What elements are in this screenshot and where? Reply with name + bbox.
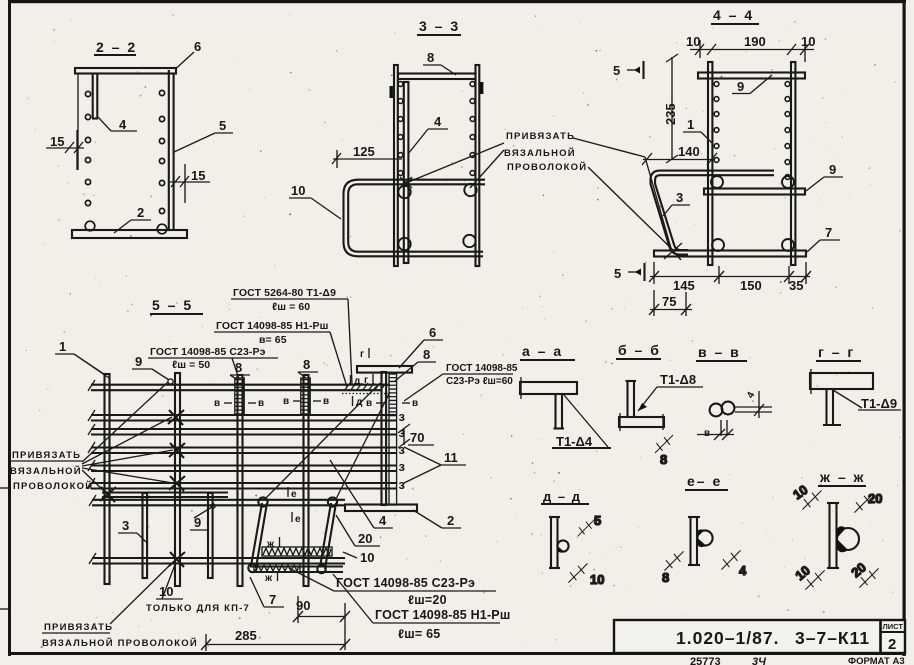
svg-text:ВЯЗАЛЬНОЙ: ВЯЗАЛЬНОЙ [10, 465, 82, 477]
svg-text:8: 8 [660, 452, 667, 467]
svg-text:7: 7 [269, 592, 276, 607]
svg-text:ж: ж [266, 539, 275, 550]
svg-text:150: 150 [740, 278, 762, 293]
svg-text:6: 6 [429, 325, 436, 340]
svg-text:25773: 25773 [690, 656, 721, 665]
svg-text:е: е [295, 514, 301, 525]
svg-text:10: 10 [801, 34, 815, 49]
svg-text:Т1-Δ4: Т1-Δ4 [556, 434, 593, 449]
svg-text:8: 8 [303, 357, 310, 372]
svg-text:125: 125 [353, 144, 375, 159]
svg-text:15: 15 [50, 134, 64, 149]
svg-text:ГОСТ 14098-85 С23-Рэ: ГОСТ 14098-85 С23-Рэ [336, 576, 475, 590]
svg-text:190: 190 [744, 34, 766, 49]
svg-text:1: 1 [59, 339, 66, 354]
svg-text:ГОСТ 5264-80 Т1-Δ9: ГОСТ 5264-80 Т1-Δ9 [233, 287, 336, 299]
svg-text:11: 11 [444, 450, 458, 465]
svg-text:ℓш= 65: ℓш= 65 [398, 627, 440, 641]
svg-text:285: 285 [235, 628, 257, 643]
svg-text:Т1-Δ8: Т1-Δ8 [660, 372, 696, 387]
svg-text:5: 5 [614, 266, 621, 281]
svg-text:8: 8 [235, 360, 242, 375]
svg-text:3Ч: 3Ч [752, 656, 766, 665]
svg-text:9: 9 [737, 79, 744, 94]
svg-text:ПРИВЯЗАТЬ: ПРИВЯЗАТЬ [12, 450, 81, 461]
svg-text:1: 1 [687, 117, 694, 132]
svg-text:4: 4 [434, 114, 442, 129]
svg-text:ПРИВЯЗАТЬ: ПРИВЯЗАТЬ [44, 622, 113, 633]
svg-text:ПРОВОЛОКОЙ: ПРОВОЛОКОЙ [13, 480, 93, 492]
svg-text:а – а: а – а [522, 343, 563, 359]
svg-text:г: г [360, 349, 364, 360]
svg-text:4: 4 [379, 513, 387, 528]
svg-text:6: 6 [194, 39, 201, 54]
svg-text:ТОЛЬКО ДЛЯ КП-7: ТОЛЬКО ДЛЯ КП-7 [146, 603, 250, 614]
svg-text:20: 20 [358, 531, 372, 546]
svg-text:з: з [399, 409, 406, 424]
svg-text:20: 20 [868, 491, 882, 506]
svg-text:в: в [366, 398, 372, 409]
svg-text:ЛИСТ: ЛИСТ [883, 622, 904, 631]
svg-text:10: 10 [360, 550, 374, 565]
svg-text:35: 35 [789, 278, 803, 293]
svg-text:7: 7 [825, 225, 832, 240]
svg-text:10: 10 [590, 572, 604, 587]
svg-text:ℓш = 60: ℓш = 60 [272, 301, 310, 313]
svg-text:в: в [214, 398, 220, 409]
svg-text:в: в [283, 396, 289, 407]
svg-text:235: 235 [663, 103, 678, 125]
svg-text:2 – 2: 2 – 2 [96, 39, 137, 55]
svg-text:ПРИВЯЗАТЬ: ПРИВЯЗАТЬ [506, 131, 575, 142]
svg-text:8: 8 [662, 570, 669, 585]
svg-text:ж: ж [264, 573, 273, 584]
svg-text:3–7–К11: 3–7–К11 [795, 628, 870, 648]
svg-text:д: д [354, 376, 361, 387]
svg-text:ВЯЗАЛЬНОЙ ПРОВОЛОКОЙ: ВЯЗАЛЬНОЙ ПРОВОЛОКОЙ [42, 637, 198, 649]
svg-text:в= 65: в= 65 [259, 334, 287, 346]
svg-text:е: е [291, 489, 297, 500]
svg-text:15: 15 [191, 168, 205, 183]
svg-text:ВЯЗАЛЬНОЙ: ВЯЗАЛЬНОЙ [504, 147, 576, 159]
svg-text:ФОРМАТ А3: ФОРМАТ А3 [848, 656, 905, 665]
svg-text:е– е: е– е [687, 473, 722, 489]
svg-text:д – д: д – д [543, 489, 581, 504]
svg-text:в: в [704, 428, 710, 439]
svg-text:9: 9 [829, 162, 836, 177]
svg-text:С23-Рэ ℓш=60: С23-Рэ ℓш=60 [446, 376, 513, 387]
svg-text:1.020–1/87.: 1.020–1/87. [676, 628, 779, 648]
svg-text:в: в [323, 396, 329, 407]
svg-text:140: 140 [678, 144, 700, 159]
svg-text:г: г [364, 375, 368, 386]
svg-text:в – в: в – в [698, 344, 741, 360]
svg-text:3: 3 [122, 518, 129, 533]
svg-text:в: в [412, 398, 418, 409]
svg-text:8: 8 [427, 50, 434, 65]
svg-text:2: 2 [447, 513, 454, 528]
svg-text:8: 8 [423, 347, 430, 362]
svg-text:г – г: г – г [818, 344, 855, 360]
svg-text:2: 2 [888, 636, 896, 653]
svg-text:3: 3 [676, 190, 683, 205]
svg-text:4: 4 [739, 563, 747, 578]
svg-text:2: 2 [137, 205, 144, 220]
svg-text:ГОСТ 14098-85 С23-Рэ: ГОСТ 14098-85 С23-Рэ [150, 346, 266, 358]
svg-text:10: 10 [291, 183, 305, 198]
svg-text:б – б: б – б [618, 342, 661, 358]
svg-text:ГОСТ 14098-85 Н1-Рш: ГОСТ 14098-85 Н1-Рш [216, 320, 329, 332]
svg-text:з: з [399, 459, 406, 474]
svg-text:ГОСТ 14098-85: ГОСТ 14098-85 [446, 363, 518, 374]
svg-text:5 – 5: 5 – 5 [152, 297, 193, 313]
svg-text:4 – 4: 4 – 4 [713, 7, 754, 23]
svg-text:3 – 3: 3 – 3 [419, 18, 460, 34]
svg-text:10: 10 [686, 34, 700, 49]
svg-text:145: 145 [673, 278, 695, 293]
svg-text:5: 5 [219, 118, 226, 133]
svg-text:з: з [399, 477, 406, 492]
svg-text:ГОСТ 14098-85 Н1-Рш: ГОСТ 14098-85 Н1-Рш [375, 608, 510, 622]
svg-text:Т1-Δ9: Т1-Δ9 [861, 396, 897, 411]
svg-text:75: 75 [662, 294, 676, 309]
svg-text:9: 9 [135, 354, 142, 369]
svg-text:ℓш=20: ℓш=20 [408, 593, 447, 607]
svg-text:5: 5 [613, 63, 620, 78]
svg-text:4: 4 [119, 117, 127, 132]
svg-text:5: 5 [594, 513, 601, 528]
svg-text:д: д [356, 397, 363, 408]
svg-text:ℓш = 50: ℓш = 50 [172, 359, 210, 371]
svg-text:70: 70 [410, 430, 424, 445]
svg-text:ж – ж: ж – ж [819, 469, 865, 485]
svg-text:ПРОВОЛОКОЙ: ПРОВОЛОКОЙ [507, 161, 587, 173]
svg-text:в: в [258, 398, 264, 409]
